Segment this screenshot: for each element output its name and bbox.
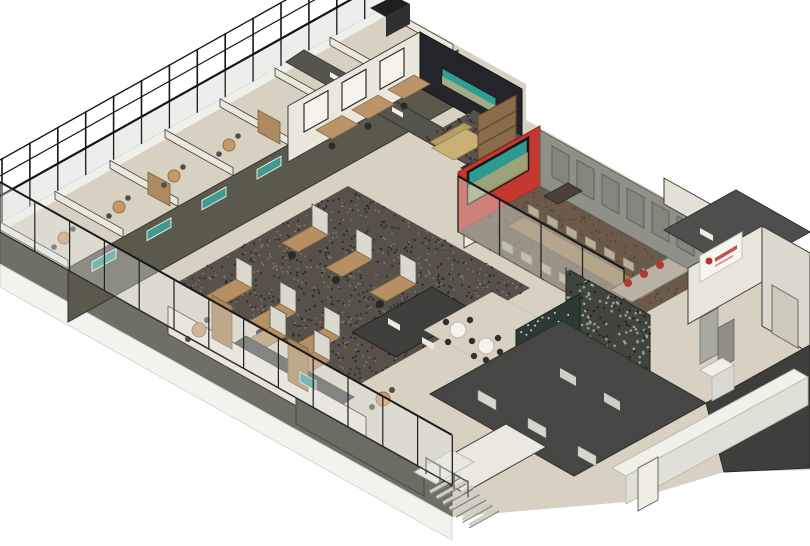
carpet-speckle-dark: [361, 344, 363, 346]
carpet-speckle-dark: [296, 259, 298, 261]
carpet-speckle-dark: [334, 227, 336, 229]
brand-sign-lion-emblem: [706, 258, 713, 265]
stone-specks-dark: [593, 310, 595, 312]
carpet-speckle-light: [349, 208, 351, 210]
carpet-speckle-dark: [352, 209, 354, 211]
lounge-carpet-speckle: [471, 161, 473, 163]
carpet-speckle-light: [355, 324, 357, 326]
carpet-speckle-dark: [420, 272, 422, 274]
carpet-speckle-light: [472, 271, 474, 273]
carpet-speckle-dark: [352, 357, 354, 359]
stone-specks-light: [634, 312, 637, 315]
carpet-speckle-dark: [249, 293, 251, 295]
carpet-speckle-dark: [323, 207, 325, 209]
carpet-speckle-dark: [230, 301, 232, 303]
carpet-speckle-dark: [287, 222, 289, 224]
carpet-speckle-dark: [368, 207, 370, 209]
carpet-speckle-dark: [417, 282, 419, 284]
carpet-speckle-light: [233, 307, 235, 309]
carpet-speckle-light: [257, 308, 259, 310]
carpet-speckle-dark: [264, 298, 266, 300]
carpet-speckle-light: [330, 257, 332, 259]
carpet-speckle-dark: [493, 274, 495, 276]
carpet-speckle-dark: [443, 284, 445, 286]
carpet-speckle-dark: [383, 206, 385, 208]
carpet-speckle-light: [374, 360, 376, 362]
carpet-speckle-dark: [448, 291, 450, 293]
stone-specks-dark: [569, 273, 571, 275]
carpet-speckle-light: [192, 285, 194, 287]
breakroom-chair: [495, 335, 501, 341]
carpet-speckle-light: [306, 266, 308, 268]
office-chair: [180, 164, 186, 170]
boardroom-carpet-speckle: [644, 248, 646, 250]
carpet-speckle-dark: [212, 276, 214, 278]
carpet-speckle-light: [352, 249, 354, 251]
stone-specks-dark: [596, 331, 598, 333]
stone-specks-light: [645, 322, 648, 325]
carpet-speckle-dark: [428, 247, 430, 249]
carpet-speckle-light: [283, 250, 285, 252]
carpet-speckle-light: [360, 215, 362, 217]
carpet-speckle-light: [353, 277, 355, 279]
carpet-speckle-dark: [405, 246, 407, 248]
carpet-speckle-light: [357, 344, 359, 346]
boardroom-carpet-speckle: [580, 221, 582, 223]
carpet-speckle-dark: [366, 312, 368, 314]
carpet-speckle-dark: [327, 252, 329, 254]
boardroom-carpet-speckle: [589, 215, 591, 217]
bench-pillow: [624, 279, 632, 287]
carpet-speckle-light: [323, 281, 325, 283]
carpet-speckle-light: [434, 251, 436, 253]
carpet-speckle-light: [260, 246, 262, 248]
lounge-carpet-speckle: [475, 128, 477, 130]
carpet-speckle-dark: [331, 303, 333, 305]
carpet-speckle-dark: [363, 296, 365, 298]
marble-specks: [520, 331, 522, 333]
carpet-speckle-light: [202, 273, 204, 275]
carpet-speckle-dark: [350, 245, 352, 247]
carpet-speckle-light: [335, 231, 337, 233]
stone-specks-light: [633, 326, 636, 329]
carpet-speckle-dark: [367, 305, 369, 307]
carpet-speckle-light: [260, 305, 262, 307]
carpet-speckle-light: [477, 286, 479, 288]
carpet-speckle-light: [259, 239, 261, 241]
lounge-carpet-speckle: [473, 130, 475, 132]
stone-specks-dark: [629, 310, 631, 312]
carpet-speckle-dark: [359, 372, 361, 374]
carpet-speckle-dark: [350, 294, 352, 296]
carpet-speckle-dark: [379, 313, 381, 315]
carpet-speckle-dark: [255, 285, 257, 287]
carpet-speckle-dark: [346, 344, 348, 346]
carpet-speckle-dark: [508, 293, 510, 295]
boardroom-carpet-speckle: [593, 223, 595, 225]
carpet-speckle-dark: [207, 265, 209, 267]
stone-specks-light: [579, 289, 582, 292]
carpet-speckle-light: [373, 287, 375, 289]
carpet-speckle-light: [512, 282, 514, 284]
carpet-speckle-dark: [324, 265, 326, 267]
office-chair: [389, 387, 395, 393]
carpet-speckle-light: [342, 205, 344, 207]
carpet-speckle-light: [505, 294, 507, 296]
stone-specks-light: [642, 339, 645, 342]
carpet-speckle-dark: [461, 284, 463, 286]
carpet-speckle-light: [322, 314, 324, 316]
stone-specks-dark: [620, 302, 622, 304]
stone-specks-light: [610, 310, 613, 313]
carpet-speckle-dark: [321, 327, 323, 329]
carpet-speckle-dark: [328, 276, 330, 278]
carpet-speckle-light: [262, 264, 264, 266]
carpet-speckle-dark: [338, 211, 340, 213]
carpet-speckle-dark: [326, 247, 328, 249]
breakroom-chair: [467, 317, 473, 323]
carpet-speckle-dark: [420, 275, 422, 277]
stone-specks-dark: [634, 351, 636, 353]
shaft-block: [700, 308, 718, 364]
carpet-speckle-dark: [448, 273, 450, 275]
carpet-speckle-dark: [300, 261, 302, 263]
carpet-speckle-dark: [351, 238, 353, 240]
carpet-speckle-dark: [332, 351, 334, 353]
carpet-speckle-dark: [314, 306, 316, 308]
marble-specks: [527, 324, 529, 326]
stone-specks-light: [611, 305, 614, 308]
carpet-speckle-light: [282, 271, 284, 273]
carpet-speckle-dark: [404, 248, 406, 250]
carpet-speckle-dark: [309, 259, 311, 261]
carpet-speckle-dark: [273, 275, 275, 277]
carpet-speckle-light: [299, 327, 301, 329]
stone-specks-light: [582, 314, 585, 317]
stone-specks-light: [605, 302, 608, 305]
boardroom-carpet-speckle: [634, 245, 636, 247]
carpet-speckle-light: [453, 289, 455, 291]
lounge-carpet-speckle: [465, 155, 467, 157]
stone-specks-dark: [586, 309, 588, 311]
carpet-speckle-dark: [389, 306, 391, 308]
carpet-speckle-light: [306, 215, 308, 217]
carpet-speckle-light: [324, 249, 326, 251]
stone-specks-light: [619, 315, 622, 318]
carpet-speckle-dark: [373, 316, 375, 318]
stone-specks-dark: [644, 330, 646, 332]
carpet-speckle-dark: [350, 273, 352, 275]
carpet-speckle-dark: [330, 296, 332, 298]
carpet-speckle-light: [357, 209, 359, 211]
carpet-speckle-dark: [450, 245, 452, 247]
carpet-speckle-dark: [244, 244, 246, 246]
stone-specks-light: [624, 342, 627, 345]
carpet-speckle-dark: [298, 335, 300, 337]
carpet-speckle-dark: [337, 300, 339, 302]
carpet-speckle-dark: [359, 274, 361, 276]
stone-specks-light: [638, 356, 641, 359]
boardroom-carpet-speckle: [611, 233, 613, 235]
viewport: [0, 0, 810, 546]
boardroom-carpet-speckle: [624, 252, 626, 254]
carpet-speckle-light: [351, 275, 353, 277]
task-chair: [332, 276, 340, 284]
marble-specks: [554, 312, 556, 314]
carpet-speckle-light: [276, 231, 278, 233]
carpet-speckle-light: [341, 321, 343, 323]
carpet-speckle-light: [502, 291, 504, 293]
carpet-speckle-light: [339, 366, 341, 368]
office-round-table: [223, 139, 235, 151]
carpet-speckle-light: [362, 355, 364, 357]
marble-specks: [567, 314, 569, 316]
carpet-speckle-light: [452, 268, 454, 270]
carpet-speckle-dark: [360, 313, 362, 315]
carpet-speckle-dark: [374, 358, 376, 360]
boardroom-carpet-speckle: [573, 219, 575, 221]
carpet-speckle-dark: [393, 227, 395, 229]
carpet-speckle-light: [267, 258, 269, 260]
carpet-speckle-light: [267, 245, 269, 247]
boardroom-carpet-speckle: [561, 226, 563, 228]
carpet-speckle-dark: [350, 200, 352, 202]
boardroom-carpet-speckle: [533, 192, 535, 194]
lounge-carpet-speckle: [436, 130, 438, 132]
boardroom-carpet-speckle: [674, 292, 676, 294]
carpet-speckle-dark: [321, 301, 323, 303]
carpet-speckle-dark: [394, 252, 396, 254]
carpet-speckle-light: [485, 274, 487, 276]
boardroom-carpet-speckle: [634, 255, 636, 257]
carpet-speckle-light: [407, 222, 409, 224]
carpet-speckle-dark: [349, 251, 351, 253]
stone-specks-light: [636, 319, 639, 322]
carpet-speckle-light: [276, 269, 278, 271]
carpet-speckle-dark: [321, 272, 323, 274]
stone-specks-light: [625, 331, 628, 334]
carpet-speckle-light: [408, 241, 410, 243]
carpet-speckle-light: [420, 267, 422, 269]
carpet-speckle-light: [285, 257, 287, 259]
carpet-speckle-light: [366, 361, 368, 363]
carpet-speckle-light: [261, 262, 263, 264]
stone-specks-light: [605, 338, 608, 341]
carpet-speckle-light: [418, 275, 420, 277]
carpet-speckle-light: [349, 229, 351, 231]
carpet-speckle-light: [253, 314, 255, 316]
boardroom-carpet-speckle: [545, 206, 547, 208]
carpet-speckle-light: [319, 321, 321, 323]
stone-specks-dark: [586, 318, 588, 320]
carpet-speckle-dark: [395, 249, 397, 251]
meeting-room-chair: [329, 143, 336, 150]
carpet-speckle-light: [440, 240, 442, 242]
carpet-speckle-dark: [354, 194, 356, 196]
carpet-speckle-dark: [438, 274, 440, 276]
carpet-speckle-dark: [482, 284, 484, 286]
carpet-speckle-light: [475, 292, 477, 294]
carpet-speckle-dark: [297, 325, 299, 327]
task-chair: [376, 300, 384, 308]
stone-specks-light: [648, 326, 651, 329]
stone-specks-light: [636, 332, 639, 335]
boardroom-carpet-speckle: [599, 231, 601, 233]
boardroom-carpet-speckle: [654, 296, 656, 298]
carpet-speckle-light: [445, 247, 447, 249]
carpet-speckle-light: [477, 295, 479, 297]
carpet-speckle-light: [242, 294, 244, 296]
carpet-speckle-dark: [296, 271, 298, 273]
stone-specks-light: [628, 317, 631, 320]
carpet-speckle-light: [344, 342, 346, 344]
marble-specks: [537, 320, 539, 322]
carpet-speckle-dark: [358, 293, 360, 295]
carpet-speckle-dark: [305, 282, 307, 284]
carpet-speckle-dark: [383, 220, 385, 222]
stone-specks-light: [618, 333, 621, 336]
stone-specks-light: [586, 295, 589, 298]
carpet-speckle-light: [252, 255, 254, 257]
marble-specks: [526, 334, 528, 336]
carpet-speckle-dark: [325, 254, 327, 256]
stone-specks-dark: [584, 279, 586, 281]
carpet-speckle-dark: [380, 236, 382, 238]
carpet-speckle-dark: [246, 300, 248, 302]
carpet-speckle-dark: [339, 223, 341, 225]
stone-specks-light: [599, 300, 602, 303]
carpet-speckle-light: [425, 259, 427, 261]
lounge-carpet-speckle: [448, 127, 450, 129]
carpet-speckle-light: [342, 219, 344, 221]
carpet-speckle-light: [429, 272, 431, 274]
carpet-speckle-light: [370, 306, 372, 308]
carpet-speckle-light: [303, 319, 305, 321]
boardroom-carpet-speckle: [658, 292, 660, 294]
carpet-speckle-light: [315, 317, 317, 319]
carpet-speckle-light: [342, 202, 344, 204]
carpet-speckle-light: [279, 234, 281, 236]
stone-specks-light: [597, 326, 600, 329]
stone-specks-dark: [603, 307, 605, 309]
boardroom-carpet-speckle: [636, 262, 638, 264]
carpet-speckle-dark: [372, 298, 374, 300]
carpet-speckle-light: [391, 233, 393, 235]
carpet-speckle-light: [286, 271, 288, 273]
carpet-speckle-dark: [292, 335, 294, 337]
carpet-speckle-dark: [435, 248, 437, 250]
breakroom-table: [450, 322, 466, 338]
carpet-speckle-dark: [387, 250, 389, 252]
carpet-speckle-dark: [348, 373, 350, 375]
carpet-speckle-light: [286, 248, 288, 250]
carpet-speckle-light: [321, 275, 323, 277]
carpet-speckle-dark: [354, 235, 356, 237]
carpet-speckle-dark: [406, 250, 408, 252]
carpet-speckle-light: [252, 309, 254, 311]
carpet-speckle-dark: [278, 238, 280, 240]
carpet-speckle-dark: [385, 225, 387, 227]
carpet-speckle-dark: [457, 273, 459, 275]
carpet-speckle-dark: [410, 251, 412, 253]
stone-specks-light: [589, 298, 592, 301]
carpet-speckle-light: [272, 267, 274, 269]
carpet-speckle-dark: [345, 322, 347, 324]
carpet-speckle-dark: [468, 292, 470, 294]
carpet-speckle-dark: [356, 351, 358, 353]
carpet-speckle-light: [357, 283, 359, 285]
carpet-speckle-light: [185, 278, 187, 280]
boardroom-carpet-speckle: [572, 208, 574, 210]
carpet-speckle-dark: [394, 215, 396, 217]
carpet-speckle-dark: [310, 319, 312, 321]
office-round-table: [113, 201, 125, 213]
carpet-speckle-light: [432, 277, 434, 279]
carpet-speckle-dark: [326, 200, 328, 202]
carpet-speckle-dark: [354, 322, 356, 324]
carpet-speckle-light: [199, 290, 201, 292]
carpet-speckle-light: [460, 276, 462, 278]
carpet-speckle-light: [414, 291, 416, 293]
carpet-speckle-light: [269, 253, 271, 255]
bench-pillow: [640, 270, 648, 278]
carpet-speckle-dark: [371, 346, 373, 348]
carpet-speckle-dark: [358, 350, 360, 352]
carpet-speckle-dark: [325, 251, 327, 253]
carpet-speckle-dark: [364, 208, 366, 210]
carpet-speckle-dark: [402, 219, 404, 221]
stone-specks-dark: [585, 282, 587, 284]
carpet-speckle-light: [375, 202, 377, 204]
carpet-speckle-light: [236, 300, 238, 302]
lounge-carpet-speckle: [442, 129, 444, 131]
carpet-speckle-dark: [382, 369, 384, 371]
carpet-speckle-light: [452, 252, 454, 254]
carpet-speckle-dark: [440, 263, 442, 265]
stone-specks-light: [584, 310, 587, 313]
stone-specks-light: [647, 346, 650, 349]
boardroom-carpet-speckle: [524, 202, 526, 204]
lounge-carpet-speckle: [469, 112, 471, 114]
boardroom-carpet-speckle: [633, 257, 635, 259]
carpet-speckle-dark: [255, 253, 257, 255]
office-chair: [235, 133, 241, 139]
carpet-speckle-light: [437, 241, 439, 243]
carpet-speckle-light: [507, 281, 509, 283]
stone-specks-light: [636, 340, 639, 343]
carpet-speckle-dark: [302, 273, 304, 275]
carpet-speckle-dark: [282, 222, 284, 224]
carpet-speckle-dark: [355, 356, 357, 358]
stone-specks-light: [613, 345, 616, 348]
carpet-speckle-dark: [468, 286, 470, 288]
carpet-speckle-dark: [250, 258, 252, 260]
carpet-speckle-dark: [519, 292, 521, 294]
carpet-speckle-dark: [443, 278, 445, 280]
carpet-speckle-light: [393, 243, 395, 245]
carpet-speckle-light: [360, 283, 362, 285]
stone-specks-dark: [649, 351, 651, 353]
stone-specks-light: [581, 324, 584, 327]
carpet-speckle-dark: [308, 308, 310, 310]
stone-specks-light: [587, 292, 590, 295]
carpet-speckle-light: [348, 300, 350, 302]
carpet-speckle-light: [375, 209, 377, 211]
carpet-speckle-dark: [457, 261, 459, 263]
carpet-speckle-light: [418, 233, 420, 235]
carpet-speckle-light: [274, 237, 276, 239]
carpet-speckle-light: [486, 264, 488, 266]
